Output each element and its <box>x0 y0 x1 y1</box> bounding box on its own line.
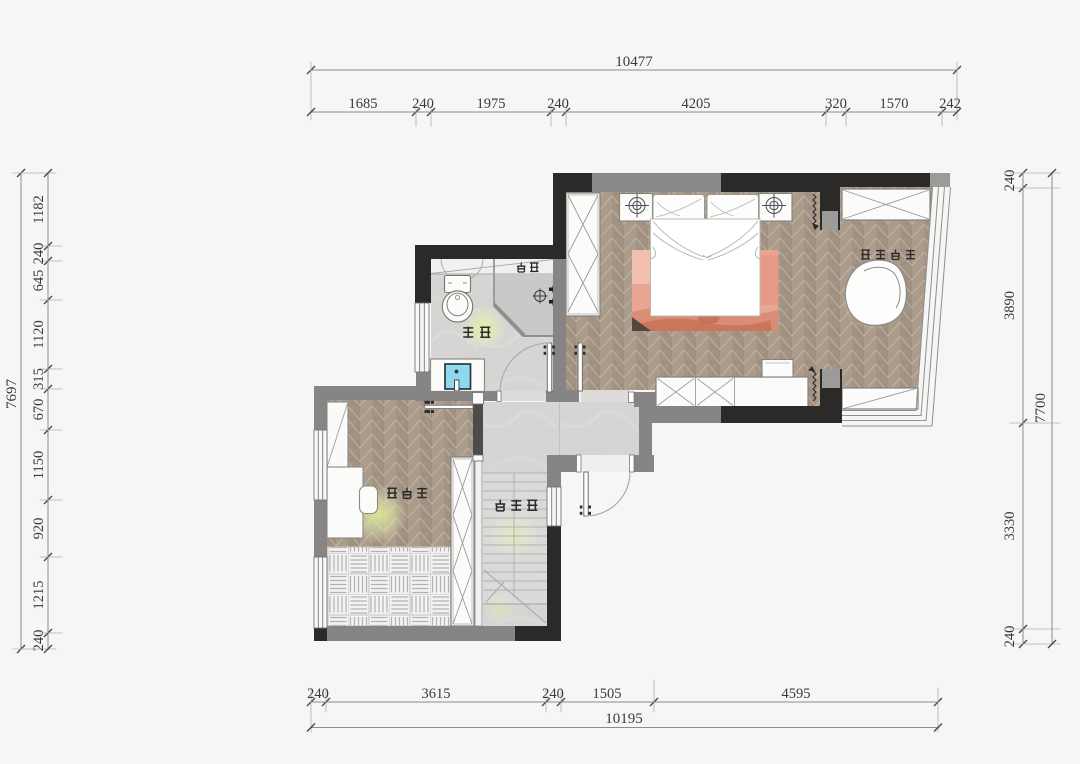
svg-text:7697: 7697 <box>4 379 20 410</box>
svg-text:320: 320 <box>825 96 847 112</box>
svg-text:1505: 1505 <box>593 686 622 702</box>
svg-text:3890: 3890 <box>1002 291 1018 320</box>
svg-text:240: 240 <box>542 686 564 702</box>
svg-text:7700: 7700 <box>1033 393 1049 423</box>
svg-text:1975: 1975 <box>477 96 506 112</box>
svg-text:10195: 10195 <box>605 711 643 727</box>
svg-text:645: 645 <box>31 270 47 292</box>
svg-text:1120: 1120 <box>31 320 47 348</box>
svg-text:3615: 3615 <box>422 686 451 702</box>
svg-text:1685: 1685 <box>349 96 378 112</box>
svg-text:240: 240 <box>31 243 47 265</box>
svg-text:242: 242 <box>939 96 961 112</box>
svg-text:1150: 1150 <box>31 451 47 479</box>
svg-text:4595: 4595 <box>782 686 811 702</box>
svg-text:10477: 10477 <box>615 54 653 70</box>
svg-text:240: 240 <box>1002 626 1018 648</box>
svg-text:240: 240 <box>547 96 569 112</box>
svg-text:315: 315 <box>31 368 47 390</box>
svg-text:240: 240 <box>307 686 329 702</box>
svg-text:240: 240 <box>412 96 434 112</box>
svg-text:240: 240 <box>31 630 47 652</box>
svg-text:4205: 4205 <box>682 96 711 112</box>
svg-text:240: 240 <box>1002 170 1018 192</box>
svg-text:3330: 3330 <box>1002 512 1018 541</box>
svg-text:1570: 1570 <box>880 96 909 112</box>
svg-text:920: 920 <box>31 518 47 540</box>
svg-text:1215: 1215 <box>31 581 47 610</box>
svg-text:1182: 1182 <box>31 195 47 223</box>
svg-text:670: 670 <box>31 399 47 421</box>
